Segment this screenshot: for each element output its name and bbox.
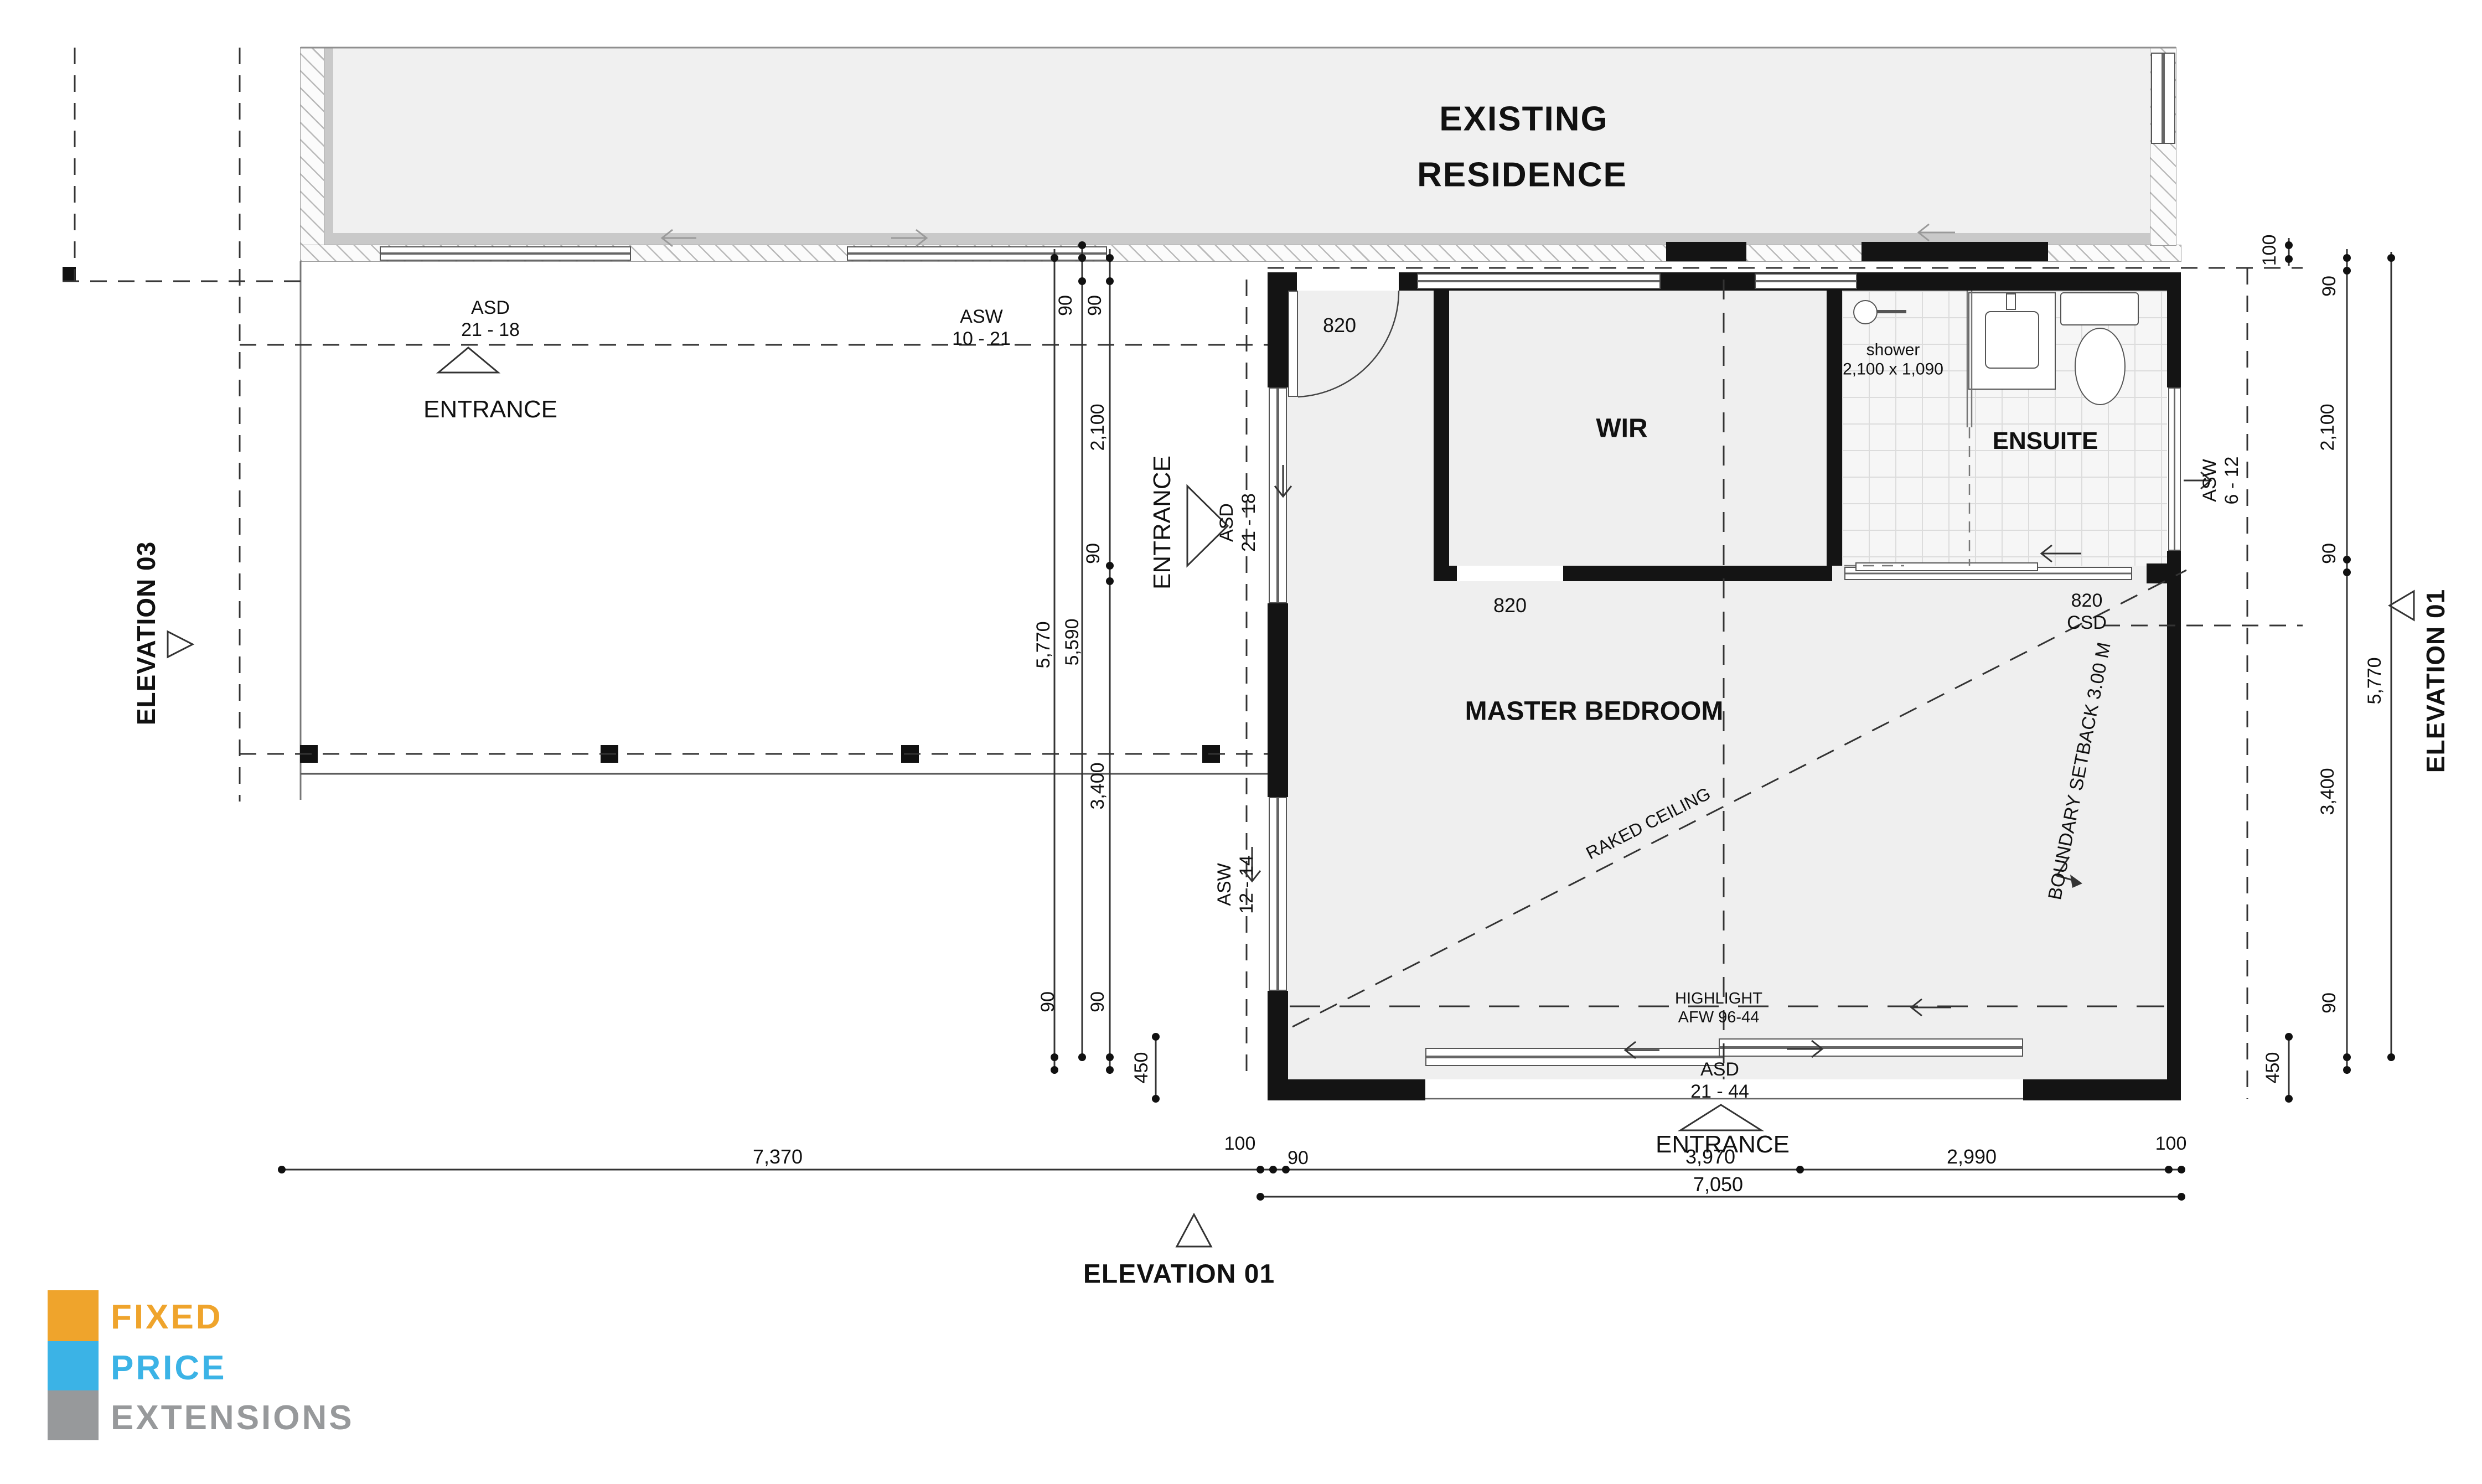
dim-r-90a: 90 [2318, 276, 2340, 297]
dim-r-90c: 90 [2318, 992, 2340, 1014]
asw-ensuite-label: ASW 6 - 12 [2199, 457, 2243, 505]
direction-arrows [1244, 465, 2211, 1058]
existing-title-line1: EXISTING [1439, 99, 1608, 139]
asw-top-code: ASW [952, 306, 1011, 328]
elevation-left-triangle [168, 632, 193, 657]
master-bedroom-label: MASTER BEDROOM [1465, 696, 1724, 728]
asd-side-code: ASD [1216, 493, 1238, 552]
dim-c-5770: 5,770 [1032, 621, 1054, 668]
dim-r-2100: 2,100 [2316, 404, 2339, 451]
csd-door-label: 820 CSD [2067, 590, 2107, 634]
dim-b-7050: 7,050 [1693, 1173, 1743, 1196]
dim-b-100r: 100 [2155, 1133, 2187, 1155]
entrance-side-label: ENTRANCE [1148, 456, 1177, 590]
dim-r-90b: 90 [2318, 543, 2340, 564]
raked-ceiling-line [1292, 570, 2186, 1027]
elevation-bottom-triangle [1177, 1214, 1211, 1247]
dim-b-90: 90 [1287, 1147, 1309, 1169]
elevation-bottom-label: ELEVATION 01 [1083, 1259, 1275, 1291]
dim-b-100l: 100 [1224, 1133, 1256, 1155]
logo-word-price: PRICE [111, 1348, 226, 1388]
asw-ensuite-code: ASW [2199, 457, 2221, 505]
asd-bottom-label: ASD 21 - 44 [1690, 1058, 1749, 1103]
shower-label-line2: 2,100 x 1,090 [1843, 360, 1943, 379]
logo-word-extensions: EXTENSIONS [111, 1398, 354, 1438]
highlight-line2: AFW 96-44 [1675, 1008, 1762, 1027]
highlight-line1: HIGHLIGHT [1675, 989, 1762, 1008]
dim-c-3400: 3,400 [1087, 762, 1109, 809]
entrance-top-triangle [438, 348, 498, 373]
csd-door-csd: CSD [2067, 612, 2107, 634]
asd-side-label: ASD 21 - 18 [1216, 493, 1260, 552]
existing-direction-arrows [662, 224, 1955, 246]
logo-word-fixed: FIXED [111, 1297, 223, 1337]
csd-door-820: 820 [2067, 590, 2107, 612]
dim-c-450: 450 [1130, 1052, 1152, 1084]
elevation-left-label: ELEVATION 03 [131, 541, 161, 725]
boundary-leader-arrowhead [2070, 875, 2082, 888]
asw-side-label: ASW 12 - 14 [1213, 855, 1258, 914]
dim-r-3400: 3,400 [2316, 768, 2339, 815]
dimension-lines [282, 238, 2391, 1197]
elevation-right-triangle [2390, 591, 2414, 620]
asw-side-code: ASW [1213, 855, 1235, 914]
highlight-label: HIGHLIGHT AFW 96-44 [1675, 989, 1762, 1027]
dim-c-2100: 2,100 [1087, 404, 1109, 451]
dim-c-90bota: 90 [1037, 991, 1059, 1012]
asw-side-num: 12 - 14 [1235, 855, 1258, 914]
shower-label-line1: shower [1843, 340, 1943, 360]
dim-r-5770: 5,770 [2364, 657, 2386, 704]
shower-screen [1844, 291, 1972, 566]
dim-c-5590: 5,590 [1061, 618, 1083, 665]
asd-top-num: 21 - 18 [461, 319, 520, 341]
entrance-top-label: ENTRANCE [423, 395, 557, 424]
asd-top-code: ASD [461, 297, 520, 319]
dim-c-90mid: 90 [1082, 543, 1104, 564]
dim-b-7370: 7,370 [753, 1145, 803, 1168]
asd-side-num: 21 - 18 [1238, 493, 1260, 552]
dim-c-90a: 90 [1054, 295, 1077, 316]
entrance-bottom-triangle [1680, 1105, 1761, 1130]
dim-b-2990: 2,990 [1947, 1145, 1997, 1168]
shower-label: shower 2,100 x 1,090 [1843, 340, 1943, 380]
ensuite-room-label: ENSUITE [1993, 427, 2098, 456]
asd-bottom-code: ASD [1690, 1058, 1749, 1080]
asd-bottom-num: 21 - 44 [1690, 1080, 1749, 1103]
dim-c-90b: 90 [1084, 295, 1106, 316]
elevation-right-label: ELEVATION 01 [2421, 589, 2450, 773]
asw-top-label: ASW 10 - 21 [952, 306, 1011, 350]
wir-door-820: 820 [1493, 594, 1527, 617]
dim-r-450: 450 [2262, 1052, 2284, 1084]
dim-r-100: 100 [2258, 235, 2281, 266]
asw-top-num: 10 - 21 [952, 328, 1011, 350]
asd-top-label: ASD 21 - 18 [461, 297, 520, 341]
existing-title-line2: RESIDENCE [1417, 154, 1627, 195]
dashed-reference-lines [63, 48, 2303, 1099]
asw-ensuite-num: 6 - 12 [2221, 457, 2243, 505]
dim-c-90botb: 90 [1087, 991, 1109, 1012]
floor-plan-canvas: EXISTING RESIDENCE ASD 21 - 18 ENTRANCE … [0, 0, 2482, 1484]
entry-door-arc [1298, 291, 1399, 397]
porch-posts [63, 267, 1220, 763]
entry-door-820: 820 [1323, 314, 1356, 337]
wir-room-label: WIR [1596, 413, 1647, 445]
dim-b-3970: 3,970 [1685, 1145, 1735, 1168]
